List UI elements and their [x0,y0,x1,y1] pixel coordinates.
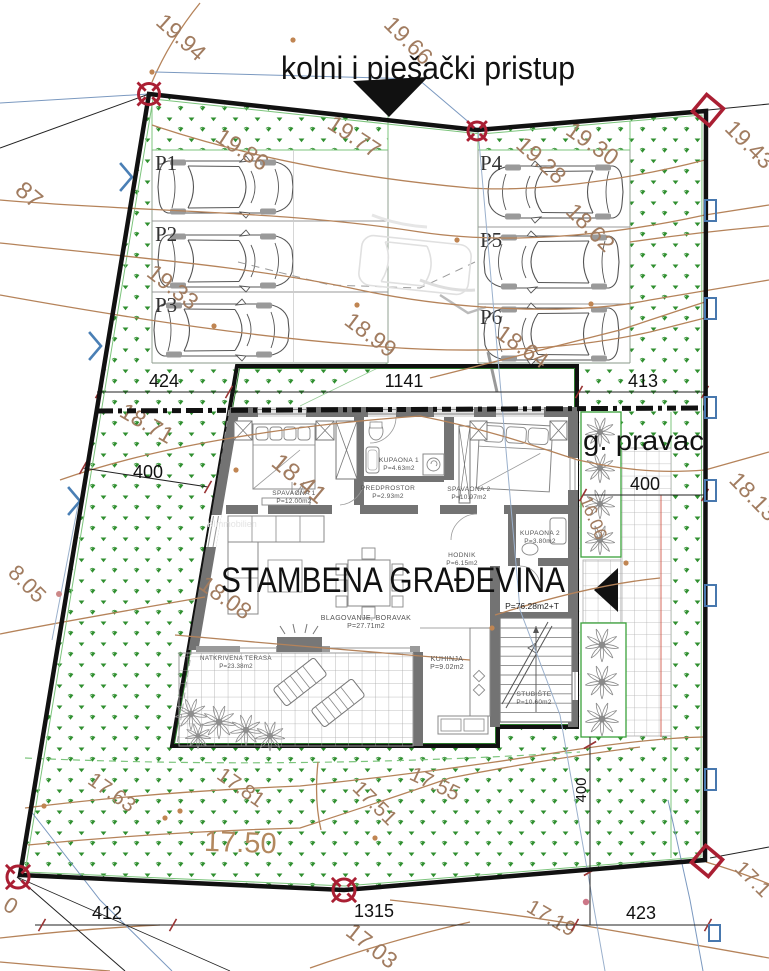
svg-text:1315: 1315 [354,901,394,921]
svg-text:KUPAONA 2: KUPAONA 2 [520,530,560,537]
svg-text:KUHINJA: KUHINJA [431,656,464,663]
svg-text:P2: P2 [155,222,177,246]
svg-text:87: 87 [10,176,48,214]
svg-text:19.94: 19.94 [151,8,211,66]
svg-text:8.05: 8.05 [3,560,51,608]
svg-text:0: 0 [0,892,22,920]
svg-text:424: 424 [149,371,179,391]
svg-text:18.13: 18.13 [724,467,769,526]
svg-text:400: 400 [573,777,590,802]
svg-text:P4: P4 [480,151,503,175]
svg-text:kolni i pješački pristup: kolni i pješački pristup [281,50,575,86]
svg-text:NATKRIVENA TERASA: NATKRIVENA TERASA [200,655,272,662]
svg-text:STUBIŠTE: STUBIŠTE [517,689,552,698]
svg-text:P=27.71m2: P=27.71m2 [347,623,385,630]
svg-text:P1: P1 [155,151,177,175]
svg-text:400: 400 [133,462,163,482]
svg-text:P5: P5 [480,228,502,252]
svg-text:P=10.60m2: P=10.60m2 [516,699,551,706]
svg-text:17.19: 17.19 [523,895,580,941]
svg-text:STAMBENA GRAĐEVINA: STAMBENA GRAĐEVINA [221,561,566,600]
svg-text:SPAVAONA 1: SPAVAONA 1 [272,490,315,497]
svg-text:17.1: 17.1 [730,857,769,902]
svg-text:P=10.97m2: P=10.97m2 [451,494,486,501]
svg-text:17.50: 17.50 [203,826,277,861]
svg-text:KUPAONA 1: KUPAONA 1 [379,457,419,464]
svg-text:SPAVAONA 2: SPAVAONA 2 [447,486,490,493]
svg-text:19.43: 19.43 [720,115,769,174]
svg-text:P=2.93m2: P=2.93m2 [372,493,404,500]
svg-text:g. pravac: g. pravac [583,425,704,456]
svg-text:KImmobilien: KImmobilien [207,519,257,529]
svg-text:412: 412 [92,903,122,923]
svg-text:P=9.02m2: P=9.02m2 [430,664,464,671]
svg-text:BLAGOVANJE, BORAVAK: BLAGOVANJE, BORAVAK [321,615,411,622]
svg-text:HODNIK: HODNIK [448,552,476,559]
svg-text:423: 423 [626,903,656,923]
svg-text:PREDPROSTOR: PREDPROSTOR [361,485,415,492]
svg-text:1141: 1141 [385,371,424,391]
svg-text:17.03: 17.03 [341,918,402,971]
svg-text:P=23.38m2: P=23.38m2 [219,663,253,670]
svg-text:P=12.00m2: P=12.00m2 [276,498,311,505]
svg-text:400: 400 [630,474,660,494]
svg-text:P=4.63m2: P=4.63m2 [383,465,415,472]
svg-text:P=3.80m2: P=3.80m2 [524,538,556,545]
svg-text:P=76.28m2+T: P=76.28m2+T [505,601,559,611]
svg-text:413: 413 [628,371,658,391]
